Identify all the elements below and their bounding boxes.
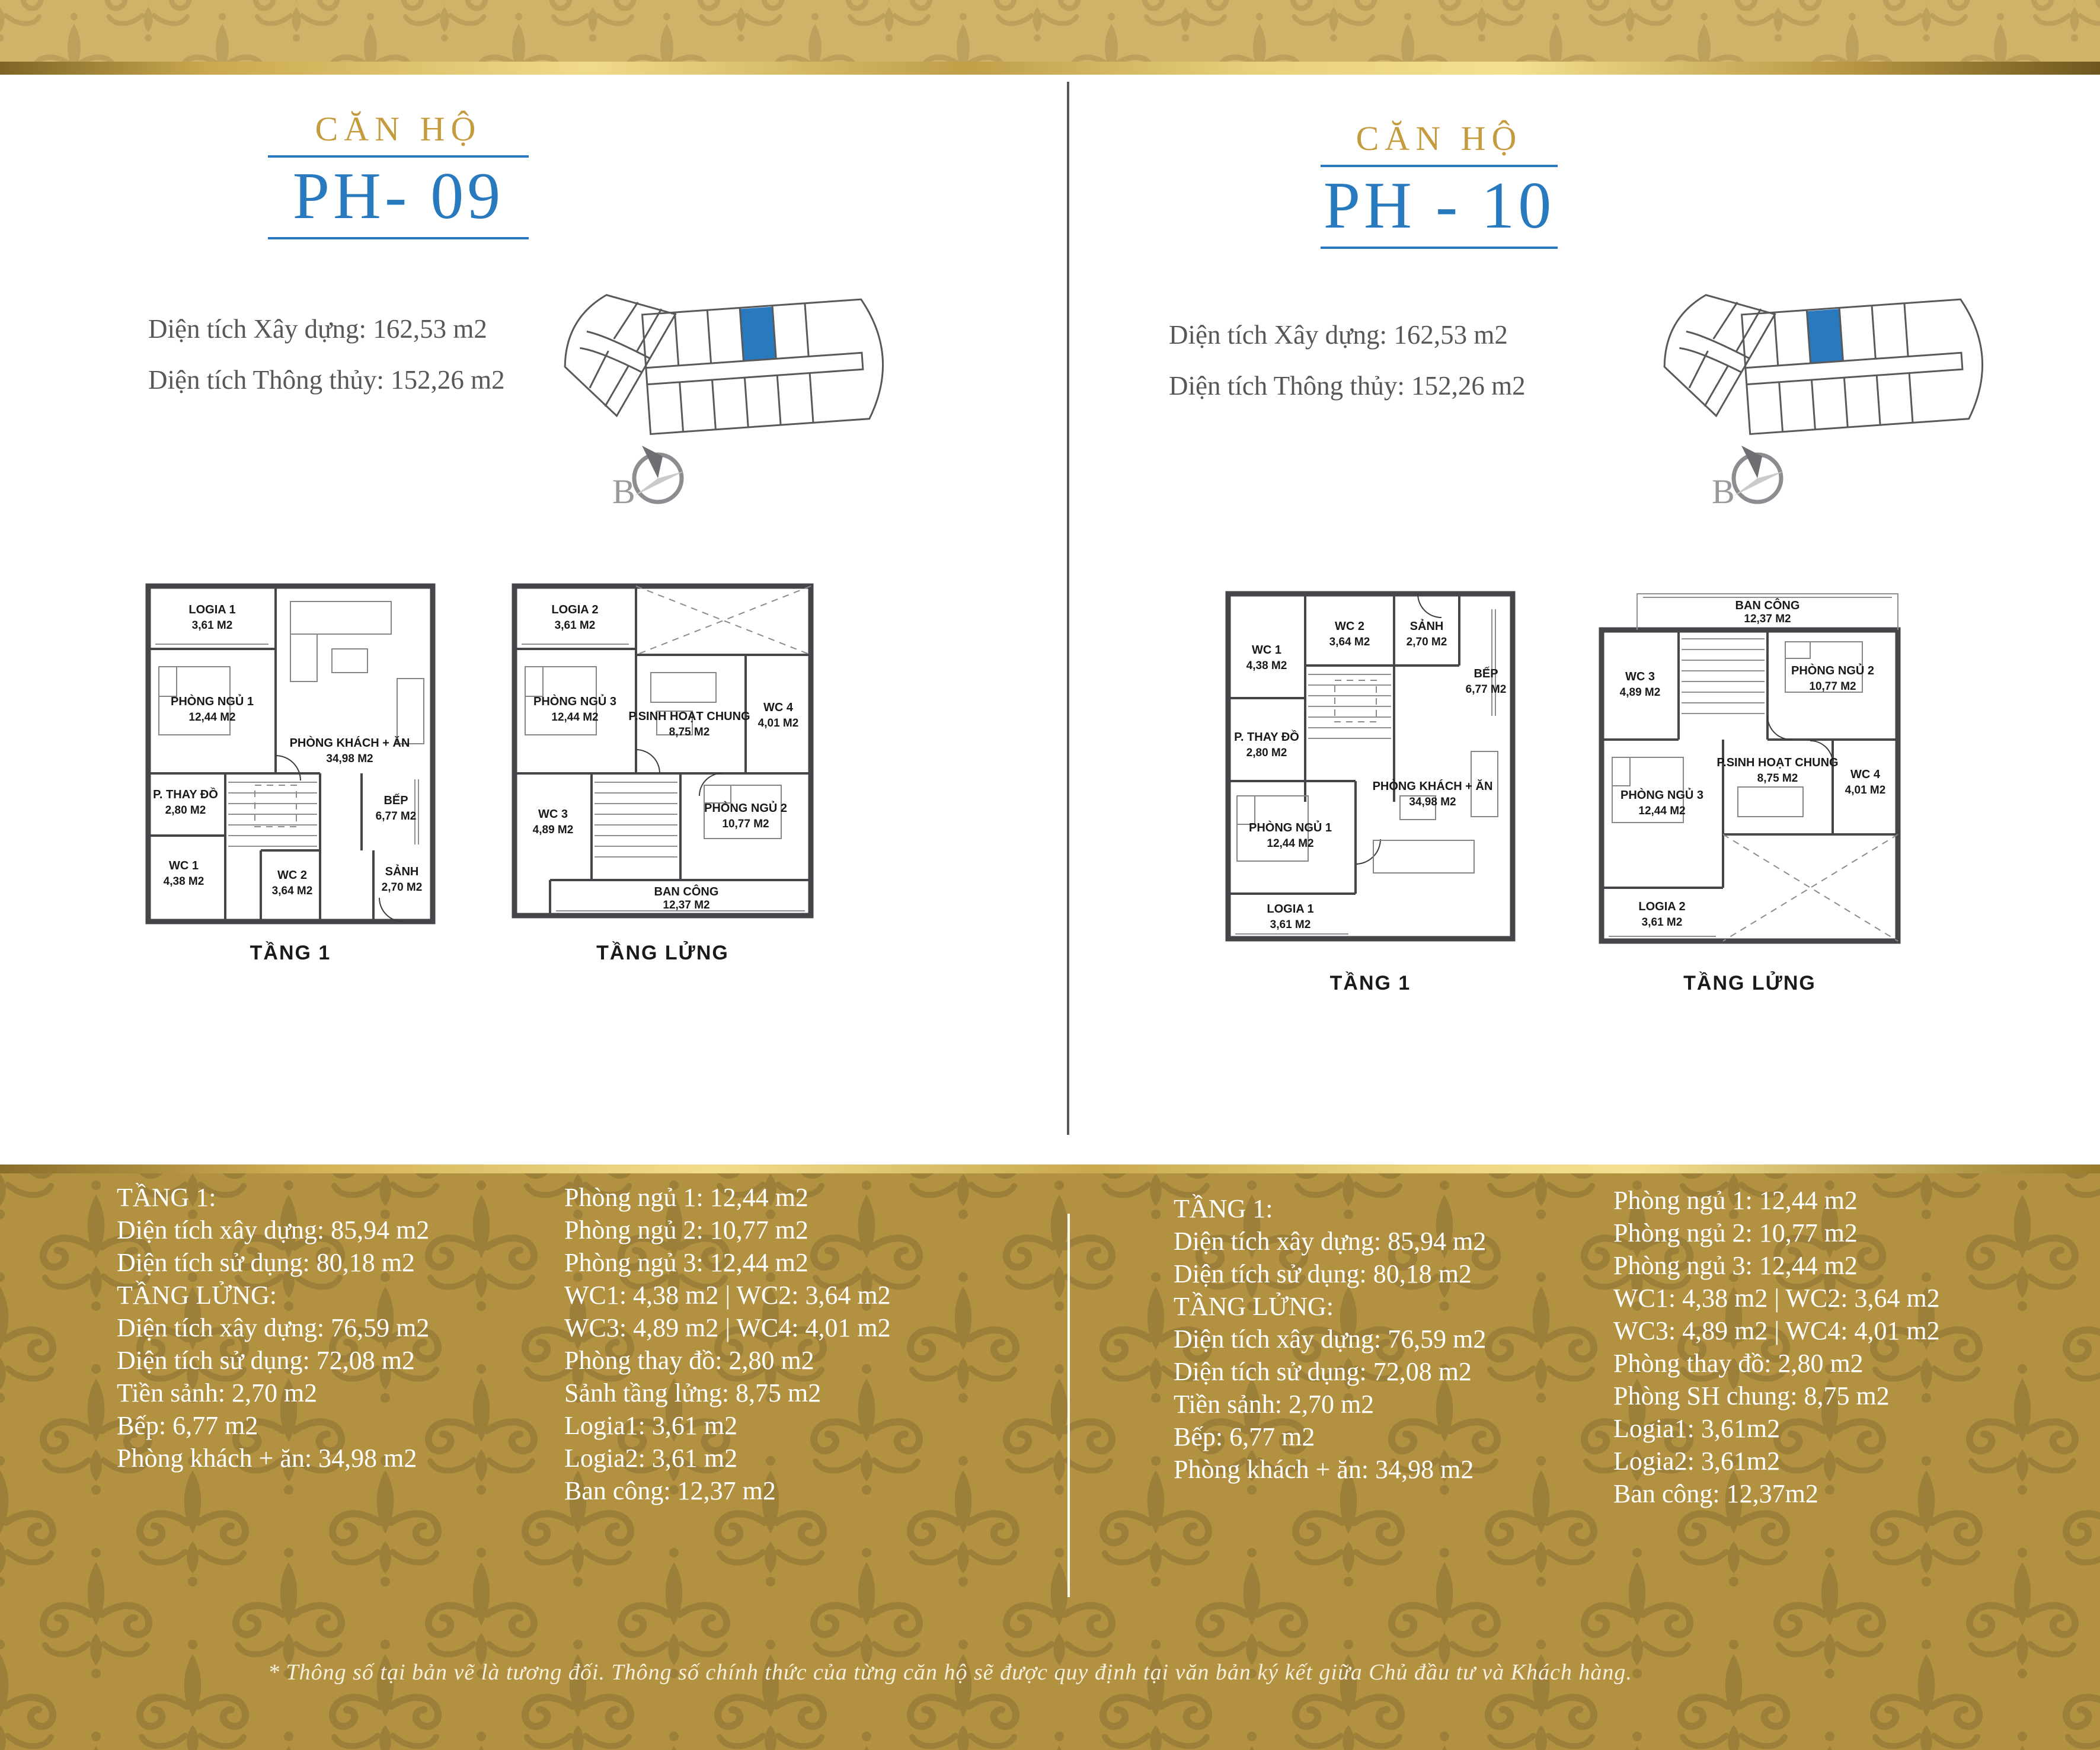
spec-line: WC1: 4,38 m2 | WC2: 3,64 m2 <box>1613 1282 1940 1314</box>
area-net: Diện tích Thông thủy: 152,26 m2 <box>1169 360 1526 411</box>
spec-line: WC3: 4,89 m2 | WC4: 4,01 m2 <box>564 1311 891 1344</box>
area-note-ph09: Diện tích Xây dựng: 162,53 m2 Diện tích … <box>148 303 505 405</box>
spec-line: WC1: 4,38 m2 | WC2: 3,64 m2 <box>564 1279 891 1311</box>
svg-text:6,77 M2: 6,77 M2 <box>1466 683 1507 696</box>
svg-text:6,77 M2: 6,77 M2 <box>376 810 417 823</box>
svg-text:WC 2: WC 2 <box>1335 620 1364 633</box>
svg-text:8,75 M2: 8,75 M2 <box>669 726 710 738</box>
spec-line: Logia2: 3,61m2 <box>1613 1445 1940 1477</box>
spec-line: Diện tích sử dụng: 72,08 m2 <box>117 1344 429 1377</box>
spec-line: Phòng khách + ăn: 34,98 m2 <box>1174 1453 1486 1486</box>
svg-text:WC 3: WC 3 <box>538 808 568 821</box>
svg-text:34,98 M2: 34,98 M2 <box>326 753 373 765</box>
spec-line: Bếp: 6,77 m2 <box>1174 1421 1486 1453</box>
spec-line: Tiền sảnh: 2,70 m2 <box>117 1377 429 1409</box>
svg-text:WC 1: WC 1 <box>169 859 199 872</box>
svg-text:PHÒNG NGỦ 3: PHÒNG NGỦ 3 <box>533 694 616 708</box>
plan-caption: TẦNG LỬNG <box>596 942 729 964</box>
spec-line: Diện tích sử dụng: 80,18 m2 <box>1174 1258 1486 1290</box>
svg-text:2,80 M2: 2,80 M2 <box>165 804 206 817</box>
stairs <box>594 782 677 857</box>
plan-caption: TẦNG 1 <box>1330 972 1411 994</box>
building-wing <box>546 274 676 416</box>
svg-text:12,37 M2: 12,37 M2 <box>663 899 709 911</box>
area-net: Diện tích Thông thủy: 152,26 m2 <box>148 354 505 405</box>
svg-text:PHÒNG NGỦ 1: PHÒNG NGỦ 1 <box>171 694 254 708</box>
svg-text:2,70 M2: 2,70 M2 <box>382 881 423 894</box>
brochure-page: { "page": { "footnote": "* Thông số tại … <box>0 0 2100 1750</box>
floor-plan-ph10-t1: WC 1 4,38 M2 WC 2 3,64 M2 SẢNH 2,70 M2 B… <box>1222 586 1519 1000</box>
svg-text:P. THAY ĐỒ: P. THAY ĐỒ <box>153 787 218 801</box>
spec-line: Phòng ngủ 1: 12,44 m2 <box>564 1181 891 1214</box>
spec-line: Diện tích xây dựng: 85,94 m2 <box>117 1214 429 1246</box>
svg-text:P.SINH HOẠT CHUNG: P.SINH HOẠT CHUNG <box>1717 756 1838 769</box>
spec-line: Logia1: 3,61m2 <box>1613 1412 1940 1445</box>
area-note-ph10: Diện tích Xây dựng: 162,53 m2 Diện tích … <box>1169 309 1526 411</box>
area-built: Diện tích Xây dựng: 162,53 m2 <box>1169 309 1526 360</box>
svg-text:4,89 M2: 4,89 M2 <box>533 824 574 836</box>
spec-line: Phòng thay đồ: 2,80 m2 <box>564 1344 891 1377</box>
svg-text:PHÒNG NGỦ 2: PHÒNG NGỦ 2 <box>1791 663 1874 677</box>
spec-line: Tiền sảnh: 2,70 m2 <box>1174 1388 1486 1421</box>
gold-ribbon-bottom <box>0 1164 2100 1173</box>
svg-text:BAN CÔNG: BAN CÔNG <box>1735 598 1800 612</box>
floor-plan-ph09-mezzanine: LOGIA 2 3,61 M2 PHÒNG NGỦ 3 12,44 M2 P.S… <box>509 578 817 969</box>
stairs <box>1682 639 1765 714</box>
unit-code-ph09: PH- 09 <box>268 158 529 231</box>
spec-line: Diện tích xây dựng: 76,59 m2 <box>1174 1323 1486 1355</box>
spec-line: Ban công: 12,37m2 <box>1613 1477 1940 1510</box>
spec-line: Logia2: 3,61 m2 <box>564 1442 891 1474</box>
area-built: Diện tích Xây dựng: 162,53 m2 <box>148 303 505 354</box>
svg-text:LOGIA 1: LOGIA 1 <box>1267 903 1313 916</box>
locator-plan-ph09: B <box>542 270 934 524</box>
svg-text:LOGIA 2: LOGIA 2 <box>1638 900 1685 913</box>
svg-text:3,61 M2: 3,61 M2 <box>192 619 233 632</box>
spec-line: Phòng ngủ 3: 12,44 m2 <box>564 1246 891 1279</box>
unit-code-ph10: PH - 10 <box>1321 167 1558 241</box>
stairs <box>228 782 317 846</box>
spec-line: Bếp: 6,77 m2 <box>117 1409 429 1442</box>
specs-ph10-col1: TẦNG 1: Diện tích xây dựng: 85,94 m2 Diệ… <box>1174 1192 1486 1486</box>
svg-text:3,64 M2: 3,64 M2 <box>1329 636 1370 648</box>
spec-line: Phòng ngủ 3: 12,44 m2 <box>1613 1249 1940 1282</box>
spec-line: Diện tích sử dụng: 80,18 m2 <box>117 1246 429 1279</box>
spec-line: Phòng ngủ 1: 12,44 m2 <box>1613 1184 1940 1217</box>
svg-text:LOGIA 2: LOGIA 2 <box>551 603 598 616</box>
spec-line: TẦNG LỬNG: <box>117 1279 429 1311</box>
svg-text:4,01 M2: 4,01 M2 <box>758 717 799 730</box>
svg-text:12,37 M2: 12,37 M2 <box>1744 613 1791 625</box>
svg-text:LOGIA 1: LOGIA 1 <box>188 603 235 616</box>
svg-text:10,77 M2: 10,77 M2 <box>1809 680 1856 693</box>
compass-label: B <box>1712 472 1735 511</box>
highlighted-unit <box>740 307 776 361</box>
building-outline <box>643 298 887 434</box>
svg-text:12,44 M2: 12,44 M2 <box>1638 805 1685 817</box>
svg-text:WC 4: WC 4 <box>1850 768 1881 781</box>
plan-caption: TẦNG 1 <box>250 942 331 964</box>
svg-text:10,77 M2: 10,77 M2 <box>722 818 769 830</box>
locator-plan-ph10: B <box>1630 270 2045 524</box>
svg-text:4,38 M2: 4,38 M2 <box>164 875 204 888</box>
floor-plan-ph10-mezzanine: BAN CÔNG 12,37 M2 WC 3 4,89 M2 PHÒNG NGỦ… <box>1596 586 1904 1000</box>
spec-line: Phòng thay đồ: 2,80 m2 <box>1613 1347 1940 1380</box>
spec-line: Diện tích sử dụng: 72,08 m2 <box>1174 1355 1486 1388</box>
svg-text:4,01 M2: 4,01 M2 <box>1845 784 1886 796</box>
specs-ph10-col2: Phòng ngủ 1: 12,44 m2 Phòng ngủ 2: 10,77… <box>1613 1184 1940 1510</box>
room-labels: LOGIA 1 3,61 M2 PHÒNG NGỦ 1 12,44 M2 PHÒ… <box>153 603 422 897</box>
unit-header-ph10: CĂN HỘ PH - 10 <box>1321 120 1558 249</box>
spec-line: TẦNG 1: <box>117 1181 429 1214</box>
unit-title-label: CĂN HỘ <box>268 110 529 148</box>
spec-line: Diện tích xây dựng: 76,59 m2 <box>117 1311 429 1344</box>
center-divider-line <box>1067 82 1069 1135</box>
room-labels: BAN CÔNG 12,37 M2 WC 3 4,89 M2 PHÒNG NGỦ… <box>1620 598 1886 929</box>
svg-text:8,75 M2: 8,75 M2 <box>1757 772 1798 785</box>
svg-text:3,61 M2: 3,61 M2 <box>1642 916 1683 929</box>
spec-line: WC3: 4,89 m2 | WC4: 4,01 m2 <box>1613 1314 1940 1347</box>
svg-text:12,44 M2: 12,44 M2 <box>188 711 235 724</box>
svg-text:12,44 M2: 12,44 M2 <box>551 711 598 724</box>
svg-text:WC 1: WC 1 <box>1252 644 1281 657</box>
svg-text:WC 2: WC 2 <box>277 869 307 882</box>
svg-text:WC 3: WC 3 <box>1625 670 1655 683</box>
svg-text:4,89 M2: 4,89 M2 <box>1620 686 1661 699</box>
svg-text:BAN CÔNG: BAN CÔNG <box>654 884 719 898</box>
svg-text:2,70 M2: 2,70 M2 <box>1407 636 1447 648</box>
svg-text:PHÒNG NGỦ 3: PHÒNG NGỦ 3 <box>1620 788 1703 802</box>
compass-icon <box>634 446 685 502</box>
floor-plan-ph09-t1: LOGIA 1 3,61 M2 PHÒNG NGỦ 1 12,44 M2 PHÒ… <box>142 578 439 969</box>
highlighted-unit <box>1807 309 1843 363</box>
svg-text:PHÒNG KHÁCH + ĂN: PHÒNG KHÁCH + ĂN <box>290 735 410 750</box>
svg-text:34,98 M2: 34,98 M2 <box>1409 796 1456 808</box>
footnote: * Thông số tại bản vẽ là tương đối. Thôn… <box>268 1659 1632 1685</box>
plan-caption: TẦNG LỬNG <box>1683 972 1816 994</box>
gold-ribbon-top <box>0 62 2100 75</box>
svg-text:WC 4: WC 4 <box>763 701 794 714</box>
svg-text:2,80 M2: 2,80 M2 <box>1246 747 1287 759</box>
svg-text:12,44 M2: 12,44 M2 <box>1267 837 1313 850</box>
spec-line: TẦNG LỬNG: <box>1174 1290 1486 1323</box>
svg-text:PHÒNG NGỦ 2: PHÒNG NGỦ 2 <box>704 801 787 815</box>
specs-ph09-col1: TẦNG 1: Diện tích xây dựng: 85,94 m2 Diệ… <box>117 1181 429 1474</box>
svg-text:BẾP: BẾP <box>383 794 408 807</box>
spec-line: Ban công: 12,37 m2 <box>564 1474 891 1507</box>
building-wing <box>1646 274 1775 416</box>
building-outline <box>1742 298 1987 434</box>
compass-icon <box>1734 446 1784 502</box>
spec-line: Phòng ngủ 2: 10,77 m2 <box>564 1214 891 1246</box>
spec-line: Diện tích xây dựng: 85,94 m2 <box>1174 1225 1486 1258</box>
specs-divider-line <box>1067 1214 1070 1597</box>
svg-text:P. THAY ĐỒ: P. THAY ĐỒ <box>1234 730 1299 744</box>
spec-line: Phòng ngủ 2: 10,77 m2 <box>1613 1217 1940 1249</box>
svg-text:P.SINH HOẠT CHUNG: P.SINH HOẠT CHUNG <box>628 710 750 723</box>
svg-text:BẾP: BẾP <box>1473 667 1498 680</box>
svg-text:SẢNH: SẢNH <box>1410 619 1444 633</box>
spec-line: Sảnh tầng lửng: 8,75 m2 <box>564 1377 891 1409</box>
svg-text:PHÒNG NGỦ 1: PHÒNG NGỦ 1 <box>1249 820 1332 834</box>
unit-title-label: CĂN HỘ <box>1321 120 1558 158</box>
spec-line: Phòng khách + ăn: 34,98 m2 <box>117 1442 429 1474</box>
specs-ph09-col2: Phòng ngủ 1: 12,44 m2 Phòng ngủ 2: 10,77… <box>564 1181 891 1507</box>
svg-text:3,61 M2: 3,61 M2 <box>555 619 596 632</box>
top-damask-band <box>0 0 2100 62</box>
header-rule-bottom <box>268 237 529 239</box>
spec-line: Phòng SH chung: 8,75 m2 <box>1613 1380 1940 1412</box>
svg-text:4,38 M2: 4,38 M2 <box>1246 660 1287 672</box>
svg-text:SẢNH: SẢNH <box>385 865 419 878</box>
walls <box>514 586 811 916</box>
svg-text:PHÒNG KHÁCH + ĂN: PHÒNG KHÁCH + ĂN <box>1373 779 1493 793</box>
svg-text:3,61 M2: 3,61 M2 <box>1270 919 1311 931</box>
spec-line: Logia1: 3,61 m2 <box>564 1409 891 1442</box>
compass-label: B <box>612 472 635 511</box>
header-rule-bottom <box>1321 247 1558 249</box>
unit-header-ph09: CĂN HỘ PH- 09 <box>268 110 529 239</box>
spec-line: TẦNG 1: <box>1174 1192 1486 1225</box>
svg-text:3,64 M2: 3,64 M2 <box>272 885 313 897</box>
stairs <box>1308 674 1391 738</box>
furniture <box>1237 751 1498 873</box>
